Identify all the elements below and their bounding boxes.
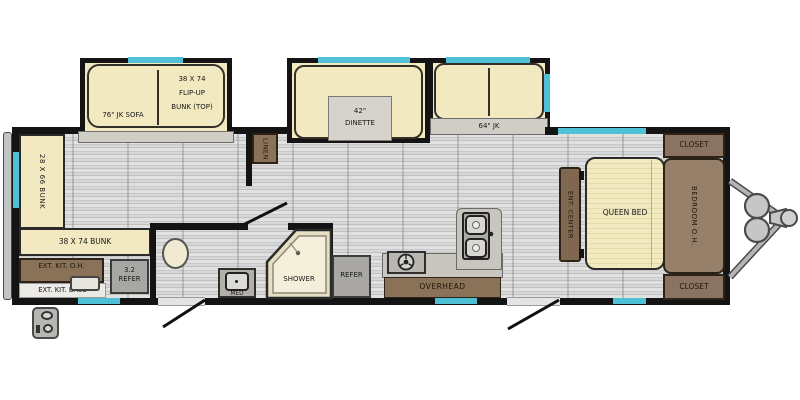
hitch-coupler-knob — [781, 210, 797, 226]
refer-3-2-label-1: 3.2 — [110, 266, 149, 275]
window-bottom-mid — [435, 298, 477, 304]
grill-burner-bottom — [43, 324, 53, 333]
bedroom-overhead-label: BEDROOM O.H. — [663, 158, 725, 274]
flipup-bunk-label-1: 38 X 74 — [160, 73, 224, 85]
shower-label: SHOWER — [272, 274, 326, 285]
jk-sofa-64-label: 64" JK — [430, 119, 548, 134]
dinette-label-1: 42" — [330, 105, 390, 117]
window-slide-dinette — [318, 57, 410, 63]
closet-bottom-label: CLOSET — [663, 274, 725, 300]
grill-control — [36, 325, 40, 333]
refer-3-2-label-2: REFER — [110, 275, 149, 284]
ext-kitchen-sink — [70, 276, 100, 291]
hitch-bar-upper — [730, 181, 780, 216]
hitch-coupler — [770, 209, 786, 227]
kitchen-sink-basin-bottom-drain — [472, 244, 480, 252]
bunk-28x66-label: 28 X 66 BUNK — [19, 134, 65, 229]
window-bottom-left — [78, 298, 120, 304]
wall-bath-left — [150, 223, 156, 300]
hitch-bar-upper-outline — [730, 181, 780, 216]
overhead-cabinet-label: OVERHEAD — [384, 277, 501, 298]
linen-label: LINEN — [252, 133, 278, 164]
bath-sink-drain — [235, 280, 238, 283]
main-entry-opening — [507, 297, 560, 306]
med-cabinet-label: MED — [219, 290, 255, 298]
wall-bath-top-left — [150, 223, 248, 230]
floorplan-canvas: 76" JK SOFA 38 X 74 FLIP-UP BUNK (TOP) 4… — [0, 0, 800, 400]
ent-center-tab-bottom — [579, 249, 584, 258]
dinette-label-2: DINETTE — [330, 117, 390, 129]
jk-sofa-64-divider — [488, 68, 490, 116]
window-slide-sofa — [128, 57, 183, 63]
closet-top-label: CLOSET — [663, 133, 725, 158]
flipup-bunk-label-3: BUNK (TOP) — [160, 101, 224, 113]
flipup-bunk-label-2: FLIP-UP — [160, 87, 224, 99]
propane-tank-bottom — [745, 218, 769, 242]
ent-center-tab-top — [579, 171, 584, 180]
sofa-bunk-divider — [157, 70, 159, 125]
stove — [387, 251, 426, 274]
ent-center-label: ENT. CENTER — [559, 167, 581, 262]
window-front-top — [558, 128, 646, 134]
toilet — [162, 238, 189, 269]
window-slide-jk-side — [544, 74, 550, 112]
propane-tank-top — [745, 194, 769, 218]
hitch-bar-lower-outline — [730, 223, 780, 277]
window-bottom-right — [613, 298, 646, 304]
wall-corner-jk — [545, 127, 558, 135]
hitch-bar-lower — [730, 223, 780, 277]
refer-main-label: REFER — [332, 269, 371, 281]
kitchen-sink-basin-top-drain — [472, 221, 480, 229]
ext-kitchen-overhead-label: EXT. KIT. O.H. — [19, 259, 104, 274]
rear-bumper — [3, 132, 12, 300]
jk-sofa-76-label: 76" JK SOFA — [90, 108, 156, 122]
bath-entry-opening — [158, 297, 205, 306]
window-slide-jk-top — [446, 57, 530, 63]
grill-burner-top — [41, 311, 53, 320]
queen-bed-label: QUEEN BED — [585, 206, 665, 220]
bunk-38x74-label: 38 X 74 BUNK — [19, 228, 151, 256]
slideout-sofa-sill — [78, 131, 234, 143]
